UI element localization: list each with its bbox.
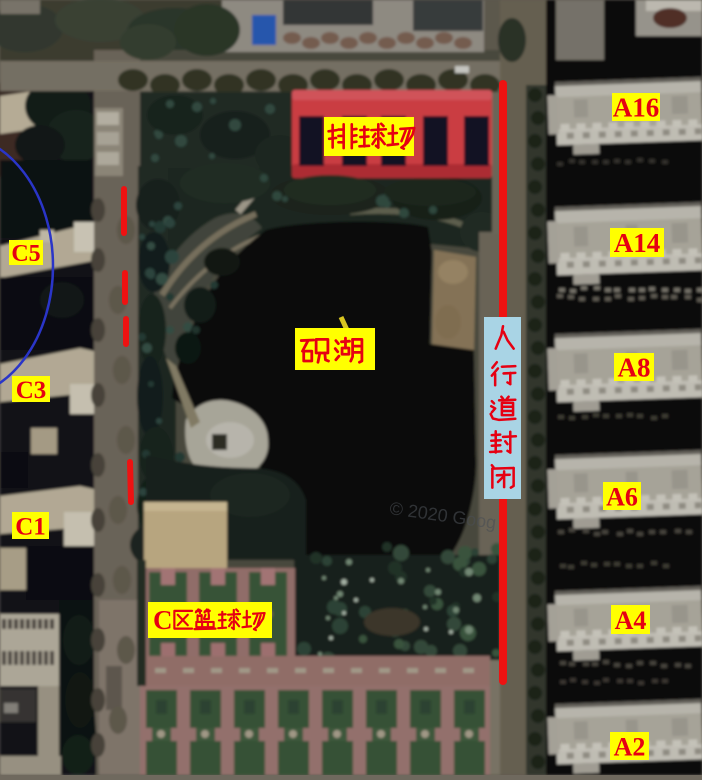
svg-text:A6: A6 xyxy=(606,482,638,511)
svg-text:C3: C3 xyxy=(16,377,47,404)
svg-text:A16: A16 xyxy=(613,93,660,123)
svg-text:A4: A4 xyxy=(615,606,647,635)
svg-text:C5: C5 xyxy=(11,241,40,267)
svg-text:A2: A2 xyxy=(614,732,646,761)
svg-text:A14: A14 xyxy=(614,228,661,258)
svg-text:C1: C1 xyxy=(15,514,46,541)
svg-text:A8: A8 xyxy=(618,353,651,383)
svg-text:C: C xyxy=(153,605,173,635)
